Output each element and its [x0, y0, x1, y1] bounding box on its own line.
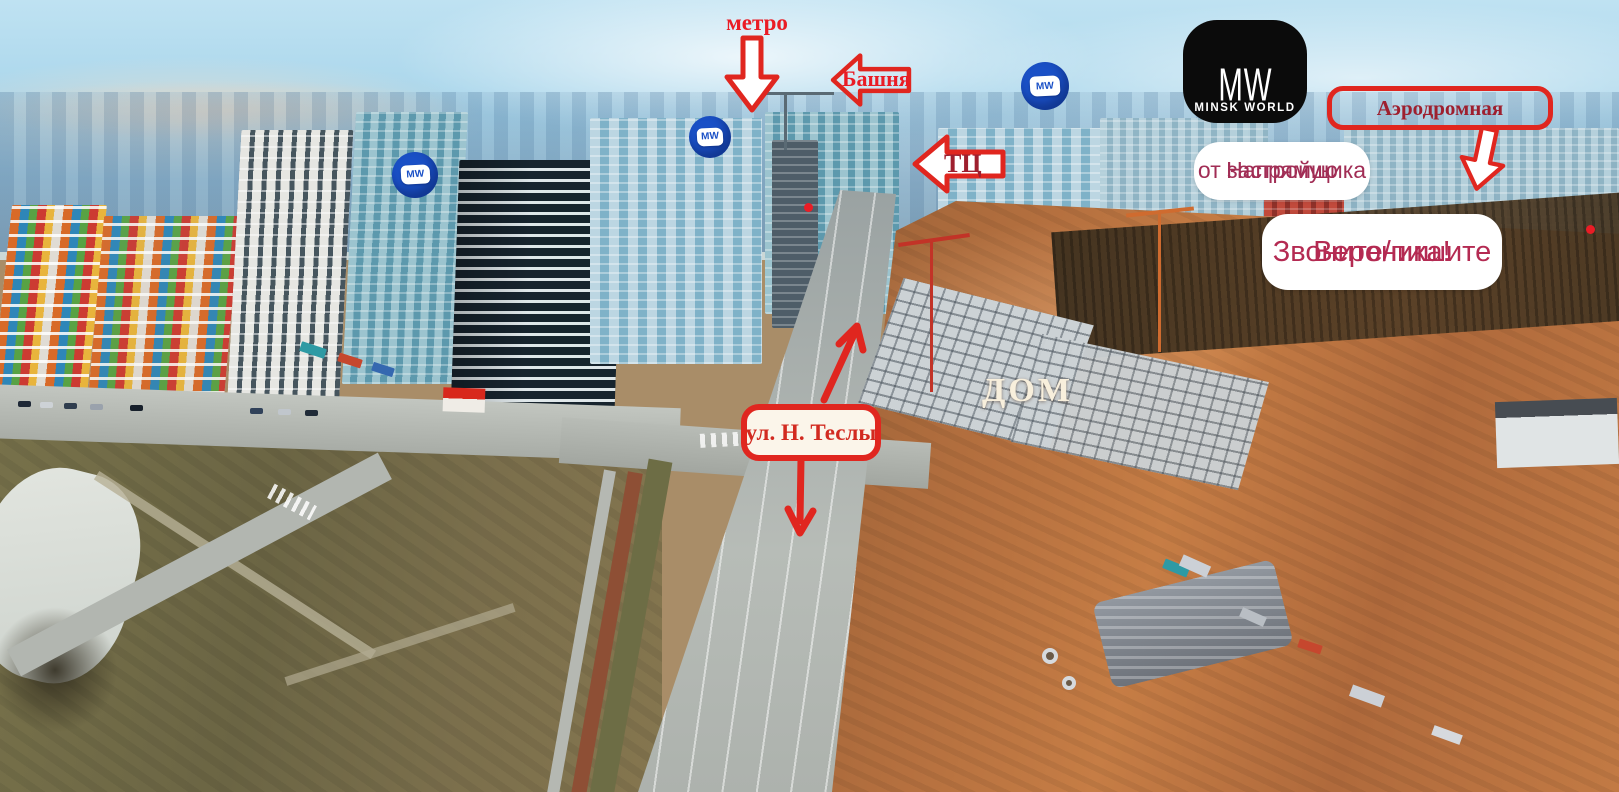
- contact-note: Звоните/пишите Вероника!: [1262, 214, 1502, 290]
- brand-name: MINSK WORLD: [1194, 102, 1295, 114]
- tesla-street-label: ул. Н. Теслы: [741, 404, 881, 461]
- concrete-pipe: [1042, 648, 1058, 664]
- house-label: ДОМ: [982, 372, 1073, 410]
- parked-car: [305, 410, 318, 416]
- street-up-arrow-icon: [812, 312, 876, 404]
- white-building: [1495, 398, 1619, 468]
- street-down-arrow-icon: [784, 455, 818, 541]
- aerial-promo-image: метро Башня ТЦ MW MW MW MW MINSK WORLD А…: [0, 0, 1619, 792]
- striped-tower: [227, 130, 354, 412]
- tower-label: Башня: [842, 66, 911, 92]
- mw-map-marker: MW: [392, 152, 438, 198]
- tower-crane: [784, 94, 787, 150]
- parked-car: [130, 405, 143, 411]
- mall-label: ТЦ: [944, 149, 982, 179]
- red-roof-kiosk: [443, 387, 486, 412]
- construction-crane: [1158, 212, 1161, 352]
- mw-map-marker: MW: [1021, 62, 1069, 110]
- aerodromnaya-street-label: Аэродромная: [1327, 86, 1553, 130]
- metro-label: метро: [716, 10, 798, 36]
- mw-flag-icon: MW: [1030, 75, 1061, 97]
- glass-towers: [590, 118, 762, 364]
- developer-note: Напрямую от застройщика: [1194, 142, 1370, 200]
- parked-car: [18, 401, 31, 407]
- parked-car: [40, 402, 53, 408]
- location-dot: [804, 203, 813, 212]
- minsk-world-logo: MW MINSK WORLD: [1183, 20, 1307, 123]
- location-dot: [1586, 225, 1595, 234]
- parked-car: [278, 409, 291, 415]
- teal-tower: [342, 112, 468, 384]
- metro-down-arrow-icon: [724, 35, 780, 113]
- parked-car: [90, 404, 103, 410]
- construction-crane: [930, 240, 933, 392]
- concrete-pipe: [1062, 676, 1076, 690]
- parked-car: [250, 408, 263, 414]
- mw-map-marker: MW: [689, 116, 731, 158]
- mw-flag-icon: MW: [400, 165, 429, 186]
- mw-flag-icon: MW: [697, 128, 724, 147]
- parked-car: [64, 403, 77, 409]
